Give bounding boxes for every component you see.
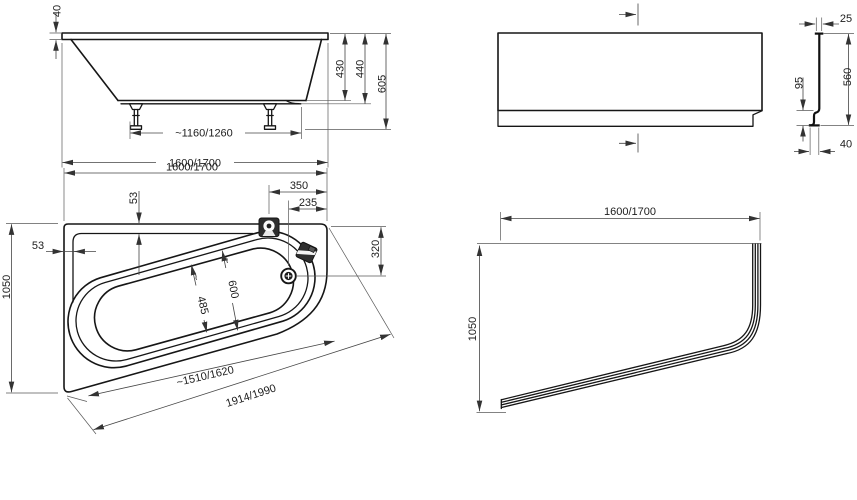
bath-plan-view: 1600/1700 350 235 53 53 1050 320 ~ 485 ~…	[1, 162, 394, 435]
dim-basin-width-inner: 485	[195, 295, 211, 316]
dim-panel-length: 1600/1700	[604, 206, 656, 218]
dim-apron-height: 560	[842, 68, 854, 86]
dim-basin-inner-approx: ~	[189, 273, 202, 282]
dim-outer-depth: 440	[355, 60, 367, 78]
dim-rim-height: 40	[52, 5, 64, 17]
dim-plan-width: 1050	[1, 275, 13, 299]
panel-plan-view: 1600/1700 1050	[467, 206, 762, 413]
bath-foot-left	[130, 104, 143, 130]
dim-corner-side: 320	[370, 240, 382, 258]
dim-front-edge-outer: 1914/1990	[224, 382, 277, 409]
apron-front-view: 25 560 95 40	[498, 4, 854, 156]
faucet-icon	[259, 218, 279, 237]
section-mark-icon	[619, 4, 638, 153]
basin-middle-contour	[76, 238, 308, 361]
apron-panel-face	[498, 33, 762, 111]
dim-plan-length: 1600/1700	[166, 162, 218, 174]
dim-apron-base-height: 95	[794, 77, 806, 89]
technical-drawing-page: 40 430 440 605 ~1160/1260 1600/1700	[0, 0, 857, 500]
bath-side-view: 40 430 440 605 ~1160/1260 1600/1700	[50, 5, 392, 170]
drain-icon	[281, 269, 296, 284]
dim-feet-span: ~1160/1260	[175, 128, 233, 140]
dim-inner-depth: 430	[335, 60, 347, 78]
dim-apron-thickness: 25	[840, 13, 852, 25]
dim-basin-width-outer: 600	[225, 279, 240, 299]
dim-apron-base-depth: 40	[840, 139, 852, 151]
dim-total-height: 605	[377, 75, 389, 93]
dim-front-edge-inner: ~1510/1620	[176, 364, 236, 389]
dim-mixer-offset: 350	[290, 180, 308, 192]
bath-foot-right	[264, 104, 277, 130]
dim-drain-offset: 235	[299, 197, 317, 209]
panel-curve	[501, 244, 760, 409]
basin-inner-contour	[95, 248, 294, 351]
drawing-canvas: 40 430 440 605 ~1160/1260 1600/1700	[0, 0, 857, 500]
dim-rim-offset-top: 53	[128, 192, 140, 204]
hand-shower-icon	[295, 242, 317, 264]
dim-basin-outer-approx: ~	[220, 256, 233, 265]
basin-outer-contour	[68, 231, 315, 367]
bath-rim	[62, 33, 328, 40]
dim-rim-offset-left: 53	[32, 240, 44, 252]
apron-profile-section	[810, 34, 822, 126]
dim-panel-width: 1050	[467, 317, 479, 341]
